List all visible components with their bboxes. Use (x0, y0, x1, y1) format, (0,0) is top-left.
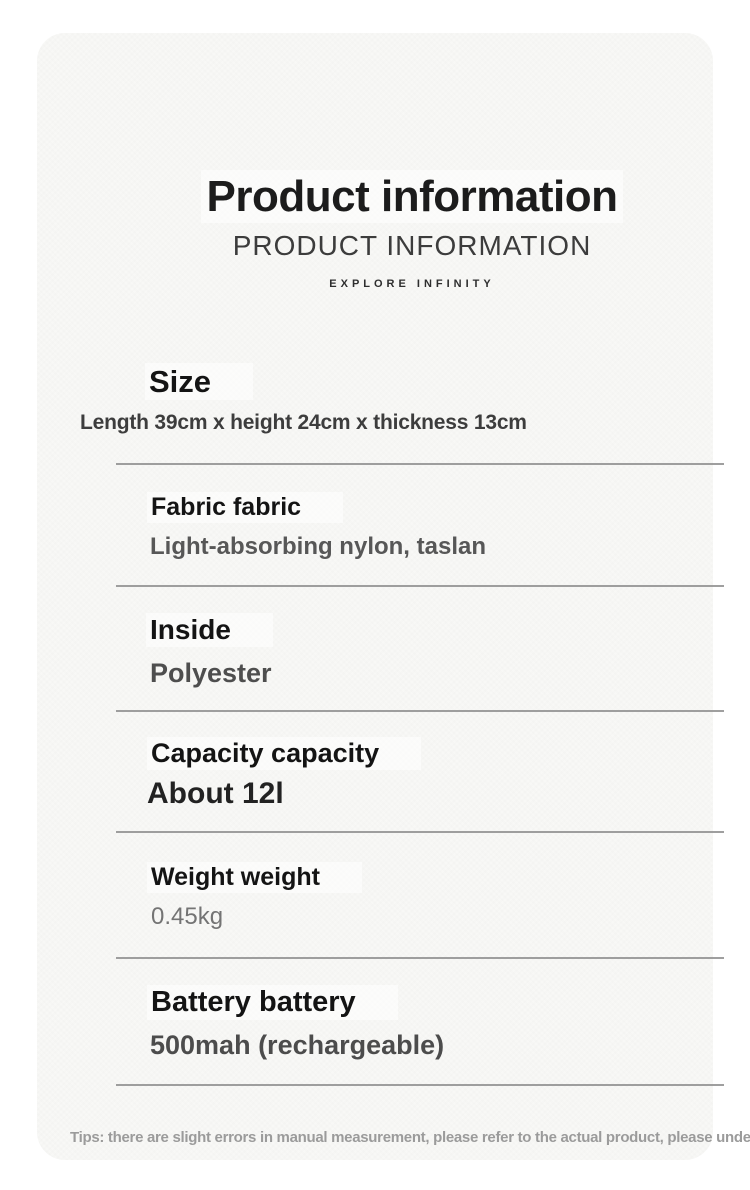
weight-value: 0.45kg (151, 905, 223, 929)
product-info-page: Product information PRODUCT INFORMATION … (0, 0, 750, 1190)
section-divider (116, 585, 724, 587)
battery-heading: Battery battery (147, 985, 398, 1020)
size-heading: Size (145, 363, 253, 400)
section-divider (116, 957, 724, 959)
inside-heading: Inside (146, 613, 273, 647)
battery-value: 500mah (rechargeable) (150, 1032, 444, 1059)
capacity-value: About 12l (147, 779, 284, 809)
page-title: Product information (37, 175, 750, 219)
page-subtitle: PRODUCT INFORMATION (37, 232, 750, 260)
size-value: Length 39cm x height 24cm x thickness 13… (80, 412, 527, 433)
capacity-heading: Capacity capacity (147, 737, 421, 770)
section-divider (116, 710, 724, 712)
page-title-text: Product information (201, 170, 624, 223)
measurement-tip: Tips: there are slight errors in manual … (70, 1129, 750, 1147)
fabric-heading: Fabric fabric (147, 492, 343, 523)
weight-heading: Weight weight (147, 862, 362, 893)
info-card: Product information PRODUCT INFORMATION … (37, 33, 713, 1160)
section-divider (116, 463, 724, 465)
page-tagline: EXPLORE INFINITY (37, 279, 750, 290)
section-divider (116, 831, 724, 833)
section-divider (116, 1084, 724, 1086)
fabric-value: Light-absorbing nylon, taslan (150, 535, 486, 559)
inside-value: Polyester (150, 660, 272, 687)
